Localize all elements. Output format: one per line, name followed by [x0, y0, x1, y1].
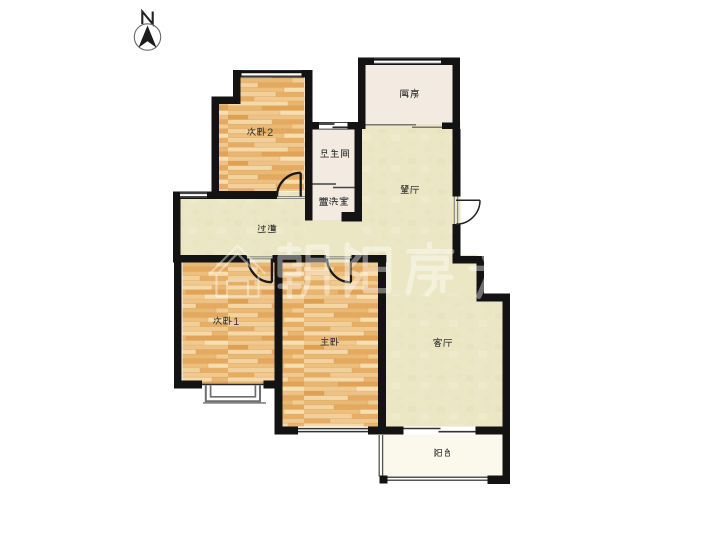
svg-text:1: 1 — [233, 316, 239, 328]
svg-text:2: 2 — [267, 127, 273, 139]
